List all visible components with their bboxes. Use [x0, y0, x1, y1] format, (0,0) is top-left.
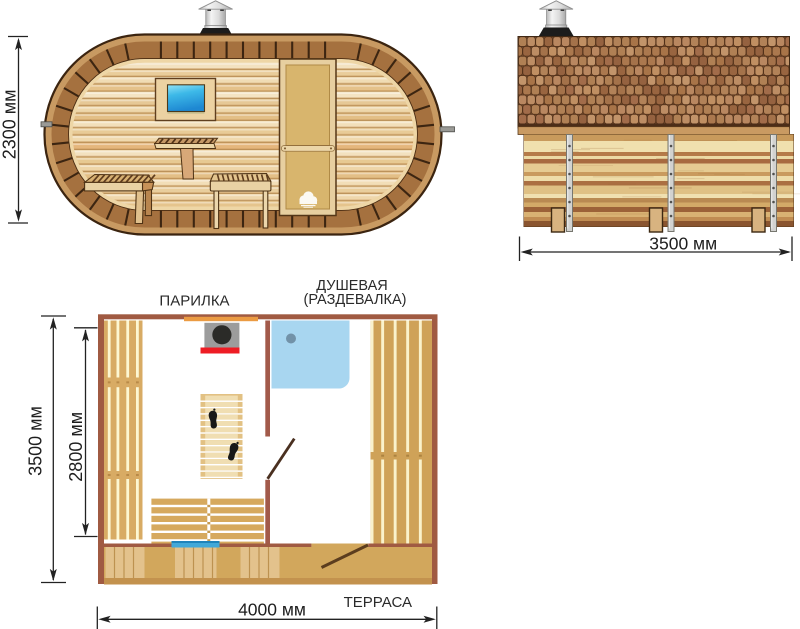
svg-text:4000 мм: 4000 мм	[238, 600, 306, 620]
svg-text:2300 мм: 2300 мм	[0, 90, 19, 160]
svg-text:3500 мм: 3500 мм	[649, 234, 717, 254]
svg-text:2800 мм: 2800 мм	[66, 412, 86, 482]
svg-text:(РАЗДЕВАЛКА): (РАЗДЕВАЛКА)	[304, 292, 407, 308]
svg-text:ПАРИЛКА: ПАРИЛКА	[159, 293, 229, 310]
svg-text:3500 мм: 3500 мм	[26, 406, 46, 476]
svg-text:ТЕРРАСА: ТЕРРАСА	[344, 594, 412, 611]
